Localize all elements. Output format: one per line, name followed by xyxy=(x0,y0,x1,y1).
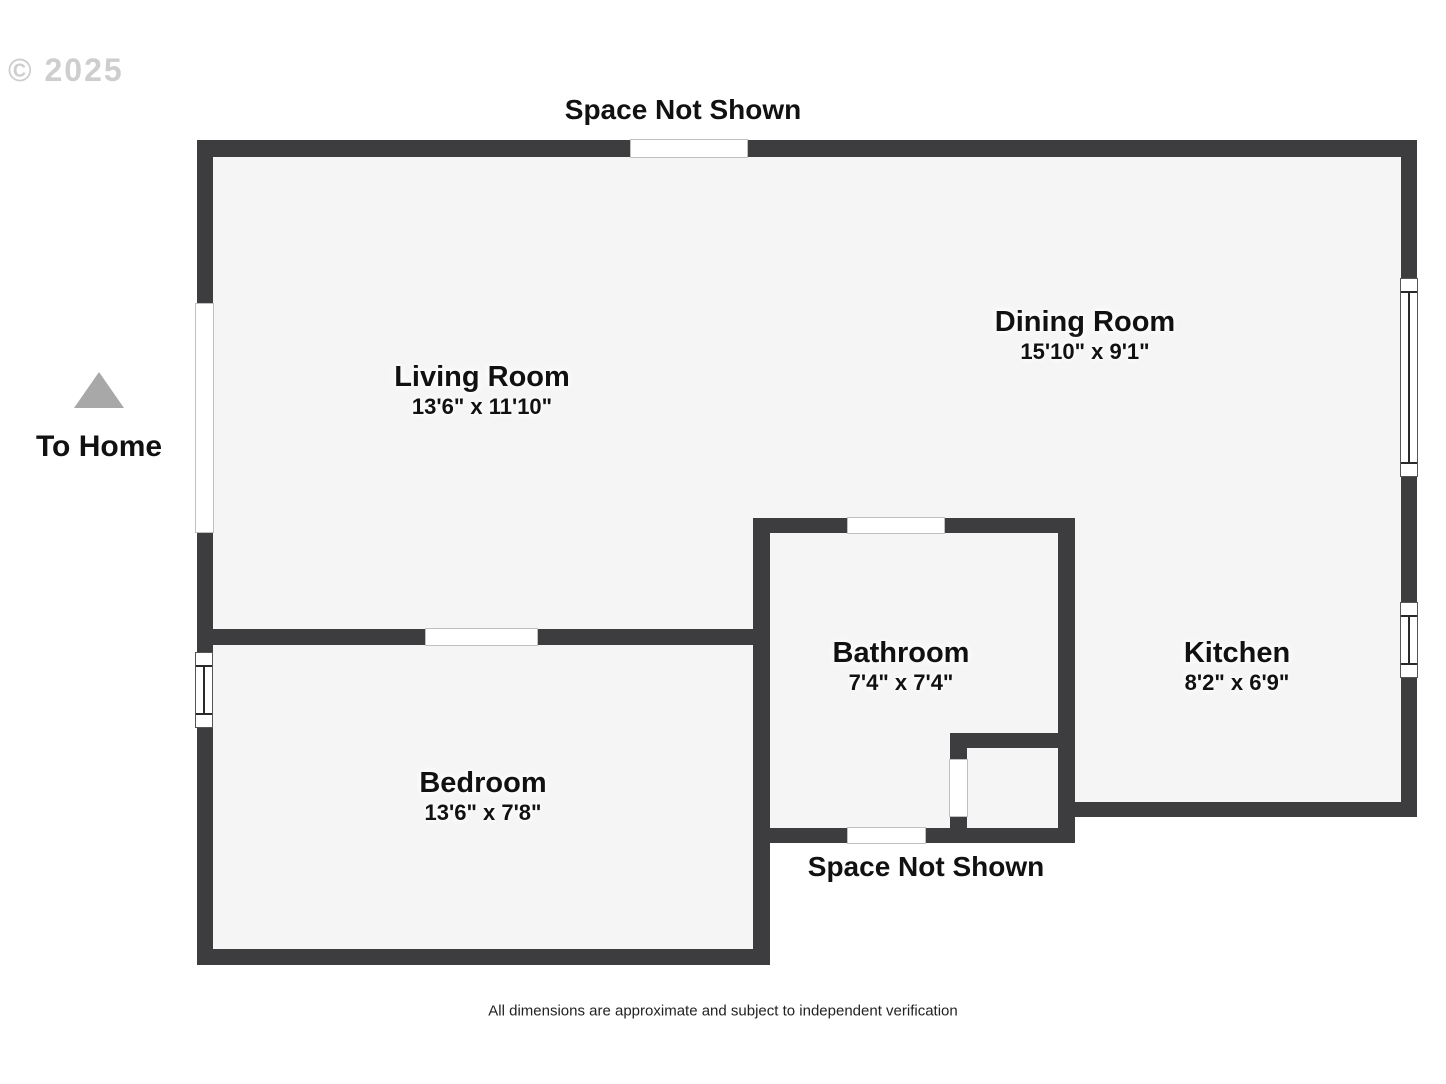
floor-plan xyxy=(0,0,1446,1084)
window-symbol xyxy=(1400,602,1418,678)
room-dimensions: 7'4" x 7'4" xyxy=(833,670,970,696)
wall xyxy=(1401,140,1417,817)
to-home-label: To Home xyxy=(36,430,162,464)
window-pane-line xyxy=(203,666,205,714)
wall xyxy=(197,140,1417,157)
room-name: Bathroom xyxy=(833,636,970,670)
room-label-kitchen: Kitchen 8'2" x 6'9" xyxy=(1184,636,1290,696)
door-opening xyxy=(949,759,968,817)
wall xyxy=(197,949,770,965)
window-pane-line xyxy=(1408,292,1410,463)
room-name: Bedroom xyxy=(419,766,546,800)
room-name: Kitchen xyxy=(1184,636,1290,670)
floor-area xyxy=(1075,157,1402,802)
room-label-bathroom: Bathroom 7'4" x 7'4" xyxy=(833,636,970,696)
window-symbol xyxy=(195,652,213,728)
footer-disclaimer: All dimensions are approximate and subje… xyxy=(488,1003,957,1020)
wall xyxy=(950,733,1075,748)
window-symbol xyxy=(1400,278,1418,477)
door-opening xyxy=(630,139,748,158)
copyright-watermark: © 2025 xyxy=(8,52,124,89)
room-dimensions: 8'2" x 6'9" xyxy=(1184,670,1290,696)
floor-plan-page: © 2025 Space Not Shown Space Not Shown T… xyxy=(0,0,1446,1084)
room-name: Living Room xyxy=(394,360,570,394)
wall xyxy=(1058,802,1417,817)
room-dimensions: 13'6" x 11'10" xyxy=(394,394,570,420)
door-opening xyxy=(847,517,945,534)
wall xyxy=(1058,518,1075,843)
room-label-living-room: Living Room 13'6" x 11'10" xyxy=(394,360,570,420)
room-dimensions: 13'6" x 7'8" xyxy=(419,800,546,826)
room-dimensions: 15'10" x 9'1" xyxy=(995,339,1175,365)
door-opening xyxy=(195,303,214,533)
room-label-dining-room: Dining Room 15'10" x 9'1" xyxy=(995,305,1175,365)
door-opening xyxy=(425,628,538,646)
wall xyxy=(197,140,213,965)
window-pane-line xyxy=(1408,616,1410,664)
to-home-arrow-icon xyxy=(74,372,124,408)
floor-area xyxy=(967,748,1058,828)
space-not-shown-bottom-label: Space Not Shown xyxy=(808,851,1044,883)
room-label-bedroom: Bedroom 13'6" x 7'8" xyxy=(419,766,546,826)
door-opening xyxy=(847,827,926,844)
wall xyxy=(753,518,770,965)
room-name: Dining Room xyxy=(995,305,1175,339)
space-not-shown-top-label: Space Not Shown xyxy=(565,94,801,126)
